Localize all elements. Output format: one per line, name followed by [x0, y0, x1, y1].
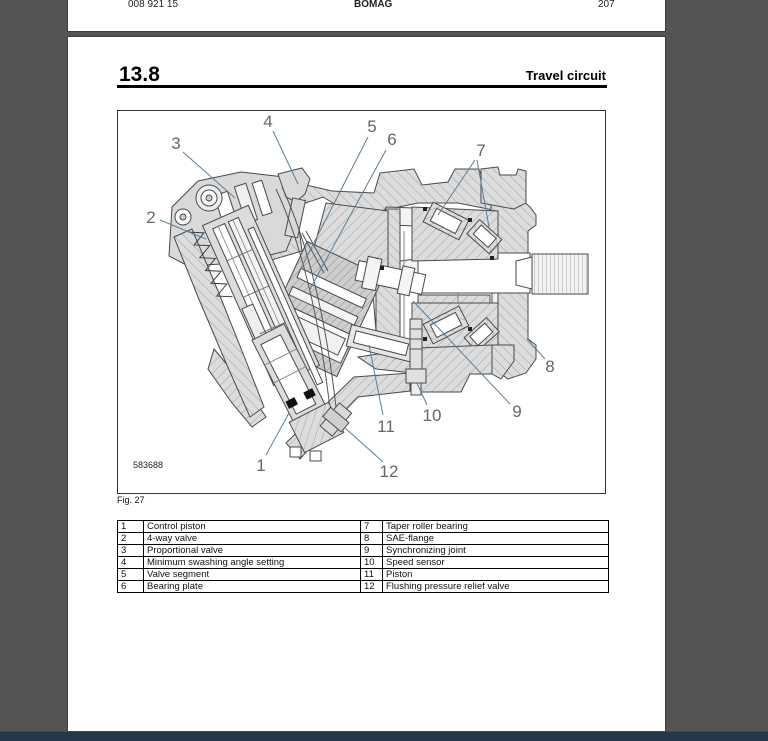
svg-text:7: 7	[476, 141, 485, 160]
svg-text:3: 3	[171, 134, 180, 153]
svg-text:2: 2	[146, 208, 155, 227]
svg-text:10: 10	[423, 406, 442, 425]
svg-text:1: 1	[256, 456, 265, 475]
svg-text:4: 4	[263, 112, 272, 131]
svg-text:11: 11	[377, 417, 395, 436]
svg-text:8: 8	[545, 357, 554, 376]
svg-text:12: 12	[380, 462, 399, 481]
svg-text:9: 9	[512, 402, 521, 421]
svg-text:6: 6	[387, 130, 396, 149]
svg-text:5: 5	[367, 117, 376, 136]
